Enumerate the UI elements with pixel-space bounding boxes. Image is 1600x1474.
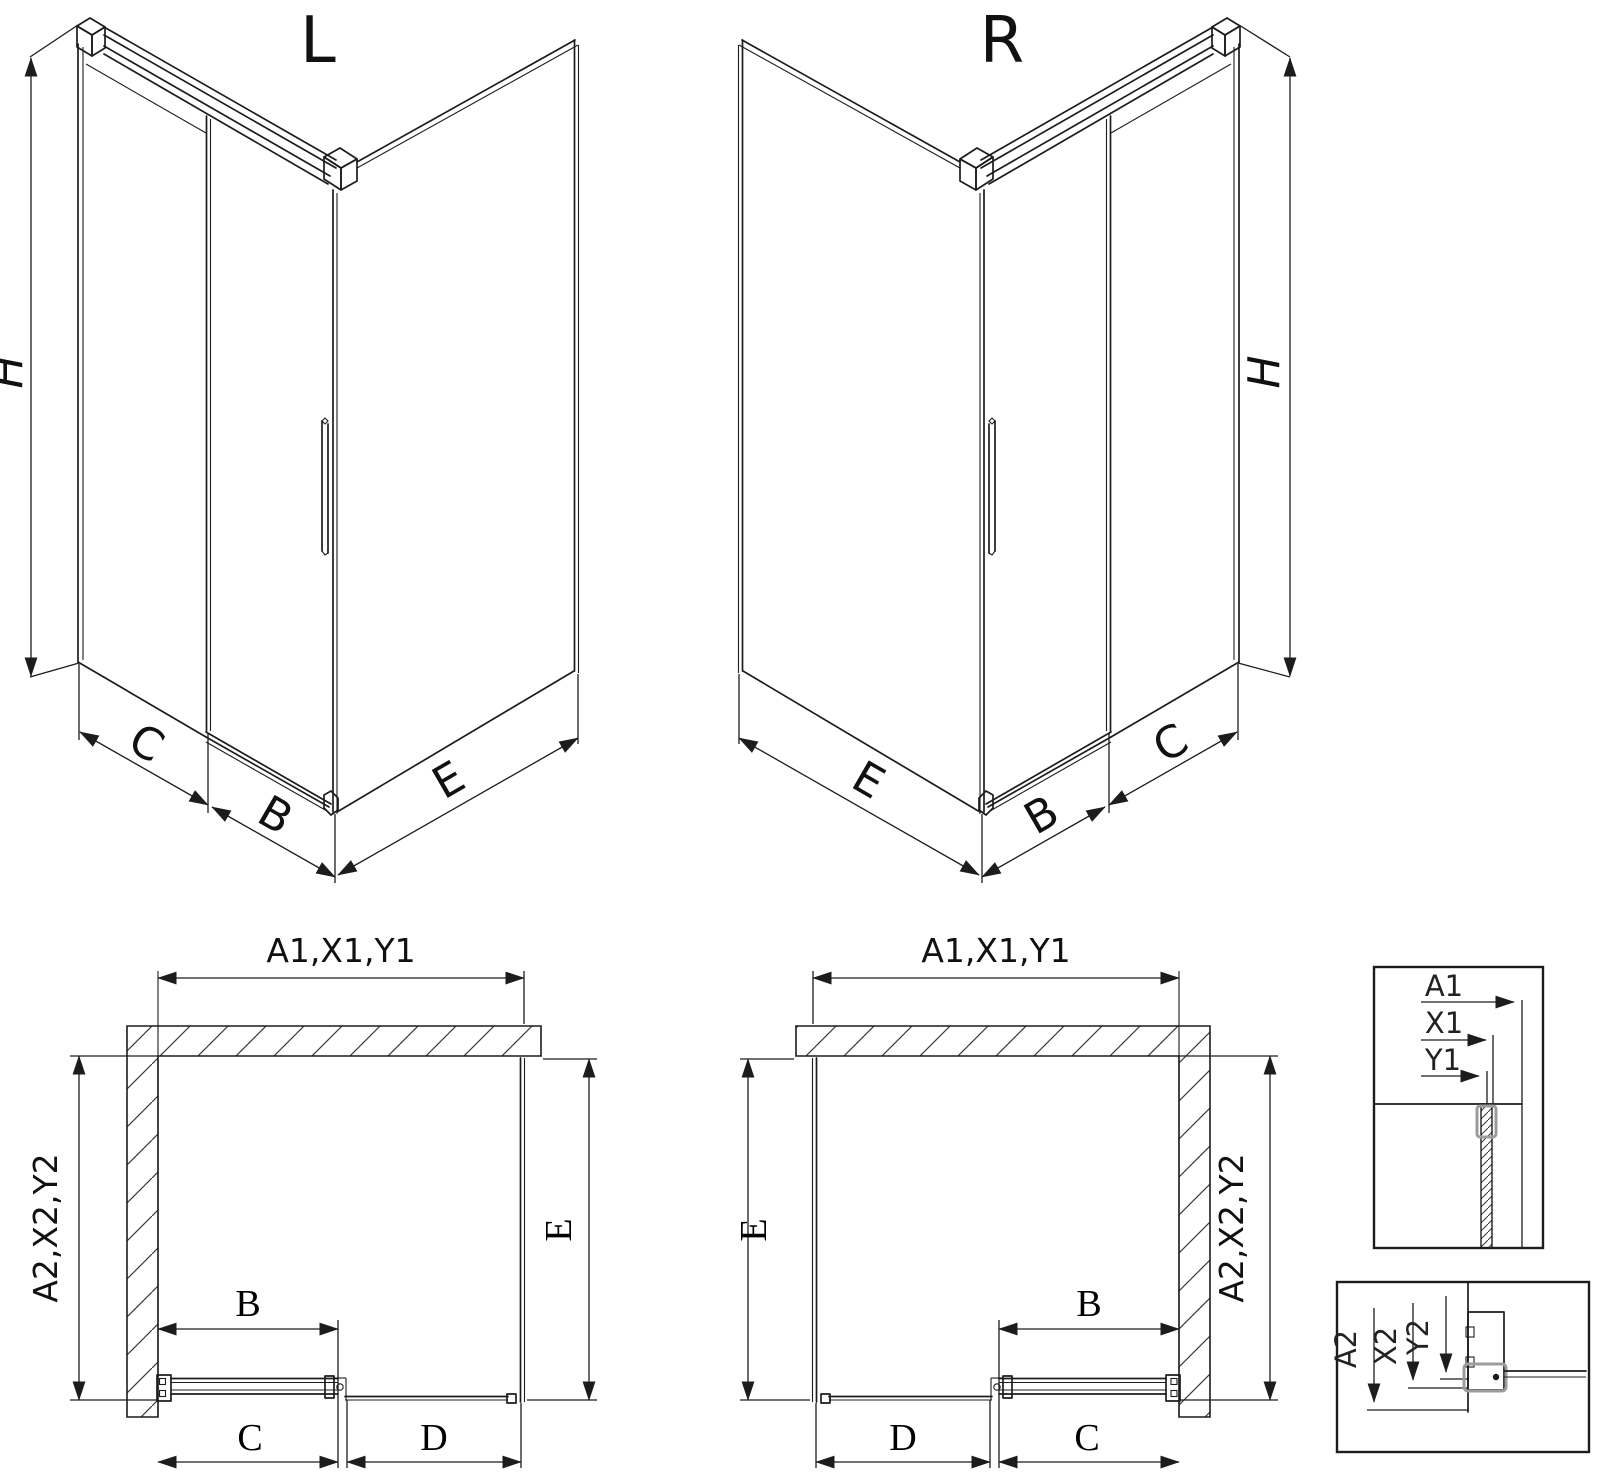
label-width-right-plan: A1,X1,Y1	[921, 931, 1070, 970]
dim-side-right-plan: E	[733, 1059, 810, 1400]
label-width-left-plan: A1,X1,Y1	[266, 931, 415, 970]
wall-profile-section	[1481, 1104, 1492, 1248]
label-height-left: H	[0, 355, 33, 388]
door-track	[157, 1375, 346, 1401]
label-fixed-right: C	[1145, 714, 1197, 774]
wall-hatch	[796, 1026, 1210, 1417]
dim-fixed-right: C	[1109, 664, 1238, 805]
door-end-cap	[821, 1394, 830, 1403]
dim-fixed-right-plan: C	[999, 1417, 1179, 1462]
label-detail-x1: X1	[1425, 1006, 1463, 1040]
fixed-panel	[78, 44, 206, 737]
door-handle	[322, 418, 328, 555]
plan-right-view: A1,X1,Y1 A2,X2,Y2 E B C D	[733, 931, 1278, 1468]
label-depth-left-plan: A2,X2,Y2	[26, 1153, 65, 1302]
sliding-door	[1107, 116, 1111, 731]
label-opening-right-plan: D	[889, 1417, 916, 1459]
label-detail-x2: X2	[1369, 1327, 1403, 1365]
label-door-right: B	[1016, 786, 1068, 845]
dim-side-right: E	[739, 674, 979, 875]
iso-right-view: R	[739, 4, 1291, 883]
side-panel	[337, 40, 579, 812]
label-detail-a1: A1	[1425, 969, 1463, 1003]
technical-drawing-page: L	[0, 0, 1600, 1474]
label-fixed-left-plan: C	[237, 1417, 262, 1459]
dim-opening-right-plan: D	[816, 1400, 990, 1468]
dim-fixed-left-plan: C	[158, 1417, 338, 1462]
label-door-right-plan: B	[1076, 1283, 1101, 1325]
dim-height-right: H	[1238, 25, 1290, 677]
sliding-door	[207, 116, 211, 731]
label-side-right: E	[843, 751, 893, 809]
label-door-left: B	[249, 786, 301, 845]
door-track	[991, 1375, 1180, 1401]
label-detail-y2: Y2	[1401, 1319, 1435, 1356]
label-door-left-plan: B	[235, 1283, 260, 1325]
dim-side-left: E	[338, 674, 578, 875]
label-side-left-plan: E	[538, 1218, 580, 1241]
variant-right-title: R	[980, 4, 1024, 78]
label-detail-y1: Y1	[1424, 1043, 1461, 1077]
dim-opening-left-plan: D	[347, 1400, 521, 1468]
side-panel	[739, 40, 981, 812]
door-profile-section	[1464, 1312, 1586, 1391]
fixed-panel	[1111, 44, 1239, 737]
label-side-left: E	[424, 751, 474, 809]
corner-cap	[960, 148, 993, 190]
dim-width-right-plan: A1,X1,Y1	[813, 931, 1179, 1024]
label-depth-right-plan: A2,X2,Y2	[1212, 1153, 1251, 1302]
shower-enclosure-drawing: L	[0, 0, 1600, 1474]
label-detail-a2: A2	[1329, 1330, 1363, 1368]
label-side-right-plan: E	[733, 1218, 775, 1241]
corner-post	[333, 190, 337, 814]
dim-width-left-plan: A1,X1,Y1	[158, 931, 524, 1024]
label-fixed-right-plan: C	[1074, 1417, 1099, 1459]
label-opening-left-plan: D	[420, 1417, 447, 1459]
dim-height-left: H	[0, 25, 79, 677]
door-handle	[989, 418, 995, 555]
plan-left-view: A1,X1,Y1 A2,X2,Y2 E B C D	[26, 931, 597, 1468]
door-glass	[821, 1394, 992, 1403]
label-fixed-left: C	[120, 714, 172, 774]
door-end-cap	[507, 1394, 516, 1403]
roller-bracket-gray	[1464, 1364, 1506, 1391]
door-glass	[345, 1394, 516, 1403]
corner-cap	[324, 148, 357, 190]
dim-door-right: B	[982, 733, 1109, 883]
roller-pin	[1493, 1374, 1499, 1380]
side-glass	[521, 1058, 525, 1402]
variant-left-title: L	[300, 4, 336, 78]
label-height-right: H	[1239, 355, 1290, 388]
iso-left-view: L	[0, 4, 579, 883]
dim-side-left-plan: E	[527, 1059, 597, 1400]
corner-post	[980, 190, 984, 814]
wall-hatch	[127, 1026, 541, 1417]
detail-bottom-section: A2 X2 Y2	[1329, 1282, 1589, 1452]
dim-fixed-left: C	[79, 664, 208, 813]
detail-top-section: A1 X1 Y1	[1374, 967, 1543, 1248]
side-glass	[813, 1058, 817, 1402]
